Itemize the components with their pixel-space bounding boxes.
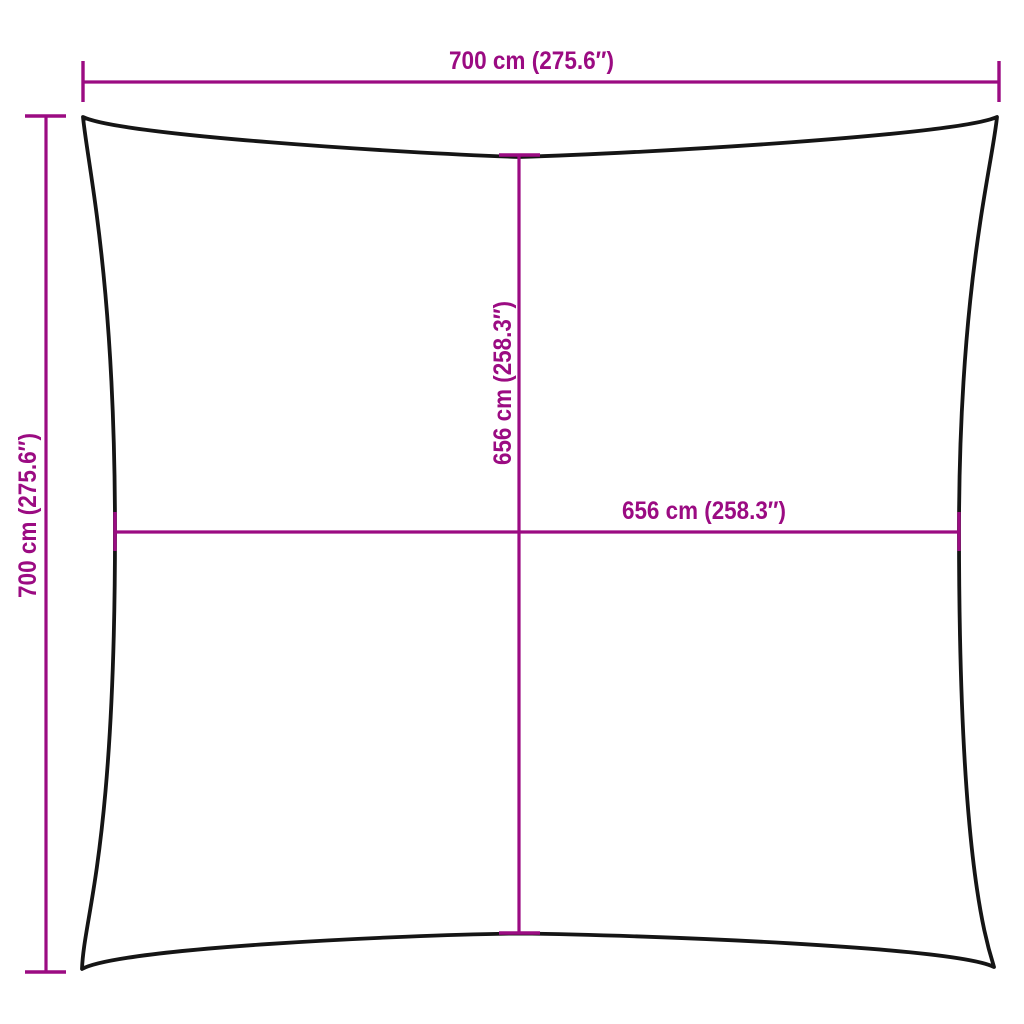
svg-text:656 cm (258.3″): 656 cm (258.3″) [622,497,786,525]
svg-text:656 cm (258.3″): 656 cm (258.3″) [489,301,517,465]
svg-text:700 cm (275.6″): 700 cm (275.6″) [14,433,42,598]
svg-text:700 cm (275.6″): 700 cm (275.6″) [449,47,614,75]
